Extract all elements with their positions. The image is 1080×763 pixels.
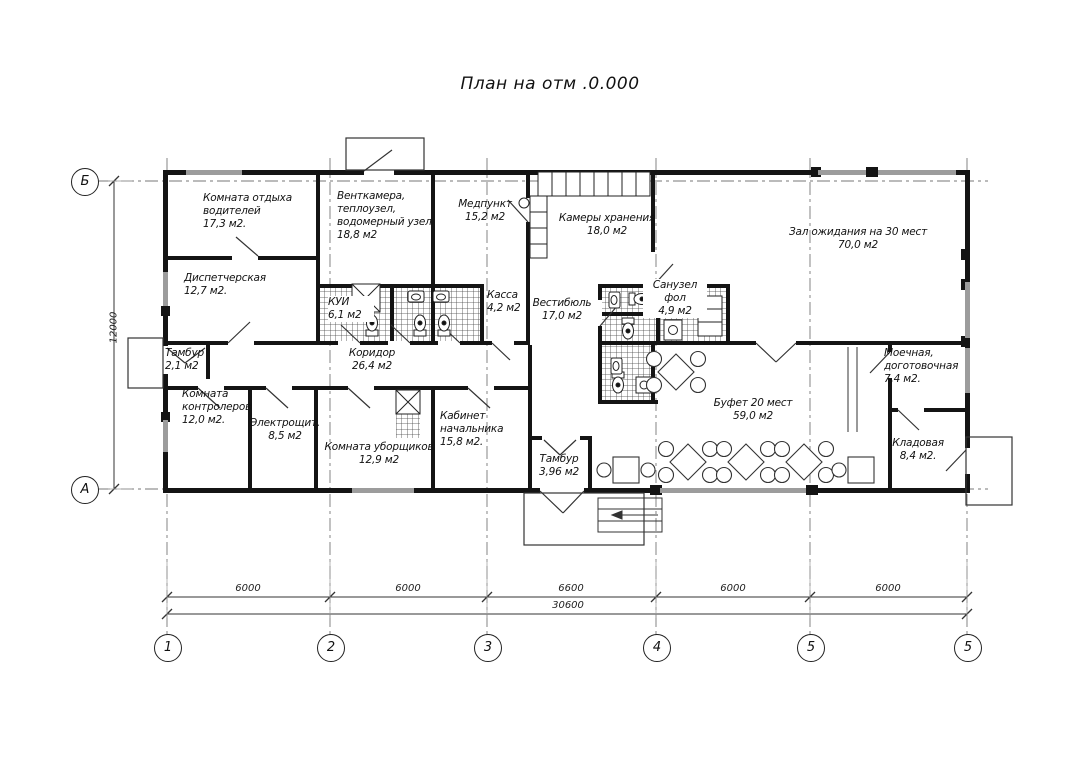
dimension-segment-4: 6000 xyxy=(703,583,763,594)
room-label-vestibule: Вестибюль17,0 м2 xyxy=(521,297,603,323)
room-label-driver-rest: Комната отдыха водителей17,3 м2. xyxy=(203,192,323,231)
grid-bubble-row-b: Б xyxy=(71,168,99,196)
dimension-segment-2: 6000 xyxy=(378,583,438,594)
room-label-chief-office: Кабинет начальника15,8 м2. xyxy=(440,410,530,449)
grid-bubble-4: 4 xyxy=(643,634,671,662)
grid-bubble-2: 2 xyxy=(317,634,345,662)
grid-bubble-5: 5 xyxy=(797,634,825,662)
grid-bubble-3: 3 xyxy=(474,634,502,662)
room-label-medpoint: Медпункт15,2 м2 xyxy=(450,198,520,224)
dimension-segment-5: 6000 xyxy=(858,583,918,594)
room-label-kui: КУИ6,1 м2 xyxy=(328,296,374,322)
room-label-electro: Электрощит.8,5 м2 xyxy=(250,417,320,443)
stairs-icon xyxy=(598,498,662,532)
room-label-corridor: Коридор26,4 м2 xyxy=(340,347,404,373)
room-label-tambour-left: Тамбур2,1 м2 xyxy=(165,347,215,373)
room-label-washing: Моечная, доготовочная7,4 м2. xyxy=(884,347,974,386)
floor-plan-sheet: План на отм .0.000 Комната отдыха водите… xyxy=(0,0,1080,763)
room-label-dispatcher: Диспетчерская12,7 м2. xyxy=(184,272,294,298)
bottom-porch xyxy=(524,493,644,545)
dimension-height: 12000 xyxy=(109,298,120,358)
room-label-pantry: Кладовая8,4 м2. xyxy=(878,437,958,463)
left-porch xyxy=(128,338,163,388)
room-label-cleaners: Комната уборщиков12,9 м2 xyxy=(318,441,440,467)
grid-bubble-1: 1 xyxy=(154,634,182,662)
top-porch xyxy=(346,138,424,170)
room-label-buffet: Буфет 20 мест59,0 м2 xyxy=(694,397,812,423)
grid-bubble-6: 5 xyxy=(954,634,982,662)
dimension-total: 30600 xyxy=(538,600,598,611)
room-label-storage-cells: Камеры хранения18,0 м2 xyxy=(548,212,666,238)
right-porch xyxy=(966,437,1012,505)
grid-bubble-row-a: А xyxy=(71,476,99,504)
dimension-segment-1: 6000 xyxy=(218,583,278,594)
room-label-tambour-bottom: Тамбур3,96 м2 xyxy=(527,453,591,479)
room-label-waiting-hall: Зал ожидания на 30 мест70,0 м2 xyxy=(778,226,938,252)
dimension-segment-3: 6600 xyxy=(541,583,601,594)
room-label-wc: Санузел фол4,9 м2 xyxy=(643,279,707,318)
room-label-vent-chamber: Венткамера, теплоузел, водомерный узел18… xyxy=(337,190,452,243)
drawing-title: План на отм .0.000 xyxy=(400,74,700,94)
